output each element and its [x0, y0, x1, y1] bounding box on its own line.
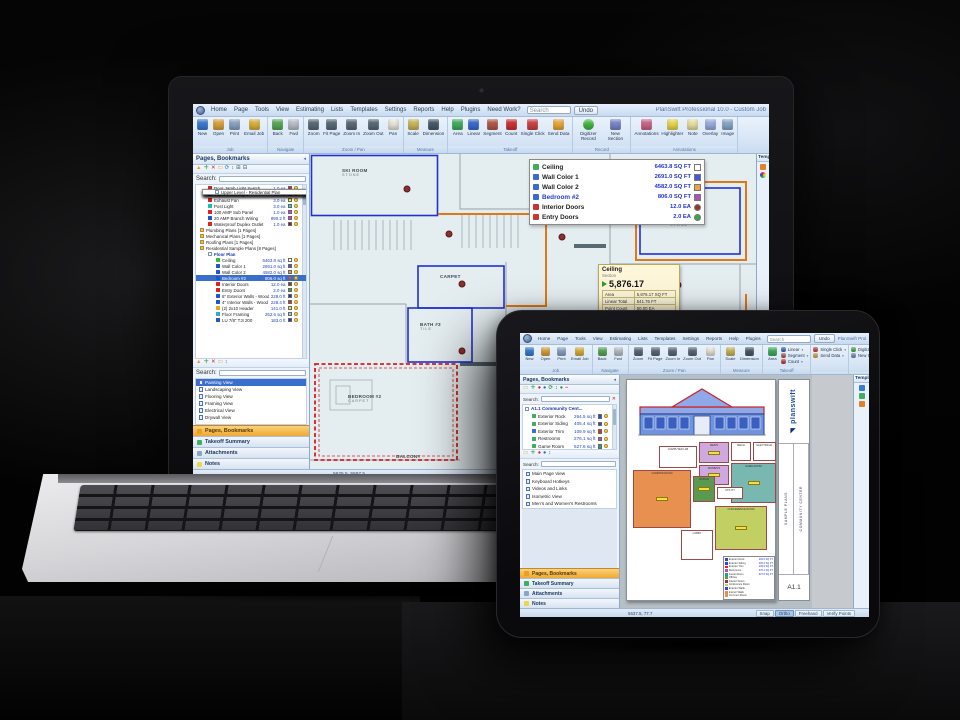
- accordion-icon: [197, 462, 202, 467]
- status-toggle-button[interactable]: Freehand: [795, 610, 822, 617]
- legend-row[interactable]: Bedroom #2 806.0 SQ FT: [533, 192, 701, 202]
- ribbon-button-icon: [851, 347, 856, 352]
- ribbon-button[interactable]: Area: [765, 346, 780, 362]
- panel-search-input[interactable]: [219, 176, 306, 182]
- accordion-icon: [524, 601, 529, 606]
- color-chip[interactable]: [288, 270, 293, 275]
- ribbon-group-label: Measure: [404, 146, 448, 153]
- panel-tool-icon[interactable]: ●: [538, 386, 541, 392]
- tree-item[interactable]: LU 7/8" TJI 200 183.0 ft: [196, 317, 306, 323]
- plan-room[interactable]: LOBBY: [681, 530, 713, 560]
- menu-tab[interactable]: Home: [535, 335, 553, 342]
- window-title: PlanSwift Professional 10.0 - Custom Job: [656, 107, 766, 113]
- ribbon-group-takeoff: Area Linear Segment Count: [448, 117, 573, 153]
- menu-tab[interactable]: Plugins: [458, 106, 484, 114]
- visibility-bulb-icon[interactable]: [604, 422, 608, 426]
- tree-item[interactable]: Restrooms 276.1 sq ft: [523, 435, 616, 443]
- panel-tool-icon[interactable]: ▭: [523, 451, 528, 457]
- ribbon-small-button[interactable]: Single Click ▾: [813, 347, 846, 352]
- plan-canvas[interactable]: COMPUTER LAB MEN'S WOMEN'S: [620, 375, 853, 608]
- ribbon-button[interactable]: Email Job: [243, 118, 265, 137]
- title-block: ◢ planswift SAMPLE PLANS COMMUNITY CENTE…: [778, 379, 810, 601]
- color-chip[interactable]: [288, 258, 293, 263]
- room-label: SKI ROOM STONE: [342, 168, 368, 177]
- pages-bookmarks-panel: Pages, Bookmarks ◂ ▲＋✕▭⟳↕⊞⊟ Search:: [193, 154, 310, 469]
- tree-item-icon: [532, 444, 536, 448]
- sheet-page: COMPUTER LAB MEN'S WOMEN'S: [626, 379, 776, 601]
- view-item[interactable]: Men's and Women's Restrooms: [523, 500, 616, 508]
- panel-tool-icon[interactable]: ▲: [196, 360, 201, 366]
- accordion-icon: [524, 591, 529, 596]
- views-search-input[interactable]: [541, 461, 616, 467]
- plan-room[interactable]: MEN'S: [699, 442, 729, 463]
- view-item[interactable]: Main Page View: [523, 470, 616, 478]
- color-chip[interactable]: [288, 210, 293, 215]
- ribbon-button-icon: [651, 347, 660, 356]
- ribbon-button[interactable]: Zoom Out: [362, 118, 384, 137]
- ribbon-group-label: Measure: [721, 367, 762, 374]
- panel-tool-icon[interactable]: ＋: [530, 451, 536, 457]
- view-item[interactable]: Drywall View: [196, 414, 306, 421]
- tree-item-icon: [208, 222, 212, 226]
- accordion-section[interactable]: Takeoff Summary: [520, 578, 619, 588]
- panel-tool-icon[interactable]: ⊟: [243, 166, 248, 172]
- ribbon-small-button[interactable]: Linear ▾: [781, 347, 809, 352]
- accordion-section[interactable]: Pages, Bookmarks: [520, 568, 619, 578]
- search-input[interactable]: Search: [527, 106, 571, 114]
- ribbon-button[interactable]: Scale: [406, 118, 421, 137]
- ribbon-button[interactable]: Open: [538, 346, 553, 362]
- menu-tab[interactable]: View: [273, 106, 292, 114]
- room-value-tag: [748, 481, 760, 485]
- plan-room[interactable]: COMPUTER LAB: [659, 446, 697, 468]
- ribbon-button-icon: [506, 119, 517, 130]
- menu-tab[interactable]: Settings: [382, 106, 410, 114]
- menu-tab[interactable]: Estimating: [607, 335, 634, 342]
- panel-empty-space: [522, 509, 617, 569]
- app-menu-button[interactable]: [523, 334, 532, 343]
- ribbon-button[interactable]: New: [195, 118, 210, 137]
- tablet-titlebar: HomePageToolsViewEstimatingListsTemplate…: [520, 333, 869, 345]
- scene: HomePageToolsViewEstimatingListsTemplate…: [0, 0, 960, 720]
- view-page-icon: [199, 380, 203, 385]
- tree-item-icon: [200, 240, 204, 244]
- color-chip[interactable]: [598, 414, 603, 419]
- visibility-bulb-icon[interactable]: [294, 312, 298, 316]
- panel-tool-icon[interactable]: ●: [543, 386, 546, 392]
- menu-tab[interactable]: Reports: [410, 106, 437, 114]
- panel-tool-icon[interactable]: ▭: [218, 166, 223, 172]
- ribbon-button[interactable]: Zoom In: [342, 118, 361, 137]
- ribbon-button-icon: [575, 347, 584, 356]
- color-chip[interactable]: [598, 429, 603, 434]
- panel-tool-icon[interactable]: ⊞: [236, 166, 241, 172]
- visibility-bulb-icon[interactable]: [294, 198, 298, 202]
- menu-tab[interactable]: Reports: [703, 335, 725, 342]
- panel-tool-icon[interactable]: ⟳: [548, 386, 553, 392]
- tree-item-icon: [200, 246, 204, 250]
- visibility-bulb-icon[interactable]: [294, 270, 298, 274]
- legend-row[interactable]: Wall Color 1 2691.0 SQ FT: [533, 172, 701, 182]
- ribbon-button[interactable]: Annotations: [633, 118, 659, 137]
- ribbon-button-icon: [583, 119, 594, 130]
- panel-tool-icon[interactable]: ＋: [203, 360, 209, 366]
- ribbon-button-icon: [468, 119, 479, 130]
- color-chip[interactable]: [288, 318, 293, 323]
- panel-header: Pages, Bookmarks ◂: [193, 154, 309, 165]
- panel-header: Pages, Bookmarks ◂: [520, 375, 619, 385]
- ribbon-button-icon: [197, 119, 208, 130]
- tablet-main: Pages, Bookmarks ◂ ▭＋●●⟳↕●− Search: ✕: [520, 375, 869, 608]
- play-icon: [602, 281, 607, 287]
- legend-color-chip: [694, 174, 701, 181]
- menu-tab[interactable]: Help: [726, 335, 741, 342]
- panel-tool-icon[interactable]: −: [565, 386, 568, 392]
- visibility-bulb-icon[interactable]: [294, 222, 298, 226]
- tree-item[interactable]: A1.1 Community Cent...: [523, 405, 616, 413]
- view-page-icon: [199, 394, 203, 399]
- panel-pin-icon[interactable]: ◂: [613, 377, 616, 383]
- visibility-bulb-icon[interactable]: [294, 276, 298, 280]
- menu-tab[interactable]: Page: [554, 335, 571, 342]
- ribbon-button[interactable]: Print: [554, 346, 569, 362]
- menu-tab[interactable]: Help: [438, 106, 456, 114]
- accordion-section[interactable]: Attachments: [193, 447, 309, 458]
- tree-item-icon: [216, 300, 220, 304]
- tree-item[interactable]: Exterior Rock 264.5 sq ft: [523, 413, 616, 421]
- ribbon-button[interactable]: Note: [685, 118, 700, 137]
- ribbon-button[interactable]: Image: [720, 118, 735, 137]
- menu-tab[interactable]: Templates: [652, 335, 679, 342]
- legend-row[interactable]: Wall Color 2 4582.0 SQ FT: [533, 182, 701, 192]
- plan-room[interactable]: COMMON ROOM: [633, 470, 691, 528]
- tree-item-icon: [532, 429, 536, 433]
- ribbon-button[interactable]: New: [522, 346, 537, 362]
- ribbon-group-label: Annotations: [631, 146, 737, 153]
- views-list: Main Page View Keyboard Hotkeys Videos a…: [522, 469, 617, 509]
- view-item[interactable]: Electrical View: [196, 407, 306, 414]
- visibility-bulb-icon[interactable]: [294, 258, 298, 262]
- panel-tool-icon[interactable]: ●: [560, 386, 563, 392]
- ribbon-group-click: Single Click ▾ Send Data ▾: [811, 345, 849, 374]
- ribbon-button-icon: [598, 347, 607, 356]
- status-toggle-button[interactable]: Snap: [756, 610, 774, 617]
- ribbon-small-button[interactable]: Send Data ▾: [813, 353, 846, 358]
- plan-room[interactable]: OFFICE: [693, 476, 715, 502]
- color-chip[interactable]: [288, 276, 293, 281]
- ribbon-small-button[interactable]: Segment ▾: [781, 353, 809, 358]
- accordion-section[interactable]: Takeoff Summary: [193, 436, 309, 447]
- templates-colorwheel-icon[interactable]: [760, 172, 766, 178]
- tree-item[interactable]: Game Room 627.6 sq ft: [523, 443, 616, 451]
- visibility-bulb-icon[interactable]: [294, 264, 298, 268]
- ribbon-button[interactable]: Pan: [386, 118, 401, 137]
- ribbon-button[interactable]: Count: [504, 118, 519, 137]
- ribbon-button[interactable]: Overlay: [701, 118, 719, 137]
- menu-tab[interactable]: Home: [208, 106, 230, 114]
- visibility-bulb-icon[interactable]: [294, 300, 298, 304]
- color-chip[interactable]: [288, 294, 293, 299]
- visibility-bulb-icon[interactable]: [294, 288, 298, 292]
- tablet-screen: HomePageToolsViewEstimatingListsTemplate…: [520, 333, 869, 617]
- laptop-ribbon: New Open Print Email Job: [193, 117, 769, 154]
- legend-row[interactable]: Ceiling 6463.8 SQ FT: [533, 162, 701, 172]
- ribbon-button-icon: [705, 119, 716, 130]
- panel-tool-icon[interactable]: ＋: [203, 166, 209, 172]
- menu-tab[interactable]: Settings: [679, 335, 702, 342]
- ribbon-group-label: [811, 372, 848, 374]
- panel-tool-icon[interactable]: ▭: [218, 360, 223, 366]
- laptop-titlebar: HomePageToolsViewEstimatingListsTemplate…: [193, 104, 769, 117]
- menu-tab[interactable]: Templates: [347, 106, 380, 114]
- tree-item-icon: [216, 312, 220, 316]
- status-toggle-button[interactable]: Verify Points: [823, 610, 855, 617]
- ribbon-group-navigate: Back Fwd Navigate: [268, 117, 304, 153]
- door-count-marker[interactable]: [459, 348, 466, 355]
- visibility-bulb-icon[interactable]: [294, 306, 298, 310]
- takeoff-type-icon: [533, 184, 539, 190]
- ribbon-button[interactable]: Fit Page: [322, 118, 341, 137]
- plan-room[interactable]: CONFERENCE ROOM: [715, 506, 767, 550]
- color-chip[interactable]: [288, 306, 293, 311]
- ribbon-button[interactable]: Digitizer Record: [575, 118, 601, 142]
- panel-tool-icon[interactable]: ↕: [555, 386, 558, 392]
- visibility-bulb-icon[interactable]: [294, 318, 298, 322]
- panel-tool-icon[interactable]: ⟳: [225, 166, 230, 172]
- planswift-logo-mark: ◢: [790, 423, 797, 434]
- panel-toolbar: ▲＋✕▭⟳↕⊞⊟: [193, 165, 309, 174]
- accordion-section[interactable]: Pages, Bookmarks: [193, 425, 309, 436]
- ribbon-button[interactable]: Single Click: [520, 118, 546, 137]
- color-chip[interactable]: [598, 444, 603, 449]
- tree-item-icon: [216, 264, 220, 268]
- views-toolbar: ▭＋●●↕: [520, 450, 619, 459]
- visibility-bulb-icon[interactable]: [604, 429, 608, 433]
- color-chip[interactable]: [288, 300, 293, 305]
- view-item[interactable]: Keyboard Hotkeys: [523, 478, 616, 486]
- view-item[interactable]: Isometric View: [523, 493, 616, 501]
- panel-tool-icon[interactable]: ▲: [196, 166, 201, 172]
- laptop-camera: [479, 88, 484, 93]
- tree-item-icon: [216, 258, 220, 262]
- search-clear-icon[interactable]: ✕: [612, 396, 616, 402]
- legend-row: Common Room: [725, 594, 773, 598]
- color-chip[interactable]: [288, 216, 293, 221]
- ribbon-button[interactable]: Back: [595, 346, 610, 362]
- door-count-marker[interactable]: [459, 281, 466, 288]
- ribbon-button[interactable]: Scale: [723, 346, 738, 362]
- menu-tab[interactable]: Lists: [328, 106, 346, 114]
- legend-swatch: [725, 591, 728, 594]
- undo-button[interactable]: Undo: [574, 106, 598, 115]
- legend-row[interactable]: Entry Doors 2.0 EA: [533, 212, 701, 222]
- ribbon-button[interactable]: Highlighter: [660, 118, 684, 137]
- panel-tool-icon[interactable]: ▭: [523, 386, 528, 392]
- ribbon-button[interactable]: Dimension: [422, 118, 446, 137]
- ribbon-group-label: Zoom / Pan: [304, 146, 402, 153]
- templates-icon-orange[interactable]: [859, 401, 865, 407]
- view-item[interactable]: Landscaping View: [196, 386, 306, 393]
- panel-search-input[interactable]: [541, 396, 610, 402]
- ribbon-button-icon: [557, 347, 566, 356]
- visibility-bulb-icon[interactable]: [294, 216, 298, 220]
- tree-item-icon: [216, 282, 220, 286]
- ribbon-button[interactable]: Fit Page: [647, 346, 664, 362]
- panel-tool-icon[interactable]: ↕: [225, 360, 228, 366]
- ribbon-small-button[interactable]: Digitizer Record: [851, 347, 869, 352]
- ribbon-button[interactable]: Linear: [466, 118, 481, 137]
- ribbon-group-job: New Open Print Email Job: [193, 117, 268, 153]
- view-item[interactable]: Videos and Links: [523, 485, 616, 493]
- ribbon-button-icon: [668, 347, 677, 356]
- door-count-marker[interactable]: [559, 234, 566, 241]
- accordion-section[interactable]: Notes: [520, 598, 619, 608]
- ribbon-button[interactable]: Email Job: [570, 346, 590, 362]
- menu-tab[interactable]: Tools: [572, 335, 589, 342]
- visibility-bulb-icon[interactable]: [604, 444, 608, 448]
- ribbon-button-icon: [408, 119, 419, 130]
- plan-room[interactable]: UTILITY: [717, 487, 743, 499]
- legend-row[interactable]: Interior Doors 12.0 EA: [533, 202, 701, 212]
- visibility-bulb-icon[interactable]: [604, 414, 608, 418]
- legend-color-chip: [694, 194, 701, 201]
- tree-item-icon: [208, 252, 212, 256]
- search-input[interactable]: Search: [767, 335, 811, 343]
- planswift-logo: ◢ planswift: [779, 380, 809, 444]
- panel-tool-icon[interactable]: ●: [538, 451, 541, 457]
- ribbon-button[interactable]: Send Data: [547, 118, 571, 137]
- tree-item[interactable]: Upper Level - Residential Plan: [202, 189, 307, 195]
- tree-item[interactable]: Exterior Trim 109.9 sq ft: [523, 428, 616, 436]
- view-item[interactable]: Framing View: [196, 400, 306, 407]
- panel-tool-icon[interactable]: ✕: [211, 166, 216, 172]
- undo-button[interactable]: Undo: [814, 334, 835, 343]
- color-chip[interactable]: [288, 288, 293, 293]
- ribbon-button[interactable]: Zoom In: [664, 346, 681, 362]
- color-chip[interactable]: [288, 264, 293, 269]
- ribbon-group-label: Navigate: [268, 146, 303, 153]
- color-chip[interactable]: [598, 422, 603, 427]
- ribbon-button[interactable]: Print: [227, 118, 242, 137]
- door-count-marker[interactable]: [446, 231, 453, 238]
- color-chip[interactable]: [288, 312, 293, 317]
- panel-tool-icon[interactable]: ↕: [231, 166, 234, 172]
- color-chip[interactable]: [288, 204, 293, 209]
- ribbon-button-icon: [288, 119, 299, 130]
- ribbon-button-icon: [781, 359, 786, 364]
- tree-item-icon: [208, 216, 212, 220]
- menu-tab[interactable]: Lists: [635, 335, 650, 342]
- templates-icon-green[interactable]: [859, 393, 865, 399]
- sheet-legend: Exterior Rock 264.5 SQ FT Exterior Sidin…: [723, 556, 775, 600]
- tooltip-table: Area5,876.17 SQ FT Linear Total541.76 FT…: [602, 290, 676, 312]
- ribbon-group-label: Record: [573, 146, 630, 153]
- panel-tool-icon[interactable]: ✕: [211, 360, 216, 366]
- templates-panel: Templates: [853, 375, 869, 608]
- tree-item-icon: [208, 210, 212, 214]
- ribbon-button-icon: [768, 347, 777, 356]
- sheet-number: A1.1: [779, 574, 809, 600]
- ribbon-button[interactable]: Area: [450, 118, 465, 137]
- takeoff-legend: Ceiling 6463.8 SQ FT Wall Color 1 2691.0…: [529, 159, 705, 225]
- ribbon-button[interactable]: Zoom: [306, 118, 321, 137]
- menu-tab[interactable]: Plugins: [743, 335, 764, 342]
- door-count-marker[interactable]: [404, 186, 411, 193]
- visibility-bulb-icon[interactable]: [294, 204, 298, 208]
- visibility-bulb-icon[interactable]: [294, 210, 298, 214]
- panel-tool-icon[interactable]: ↕: [548, 451, 551, 457]
- menu-tab[interactable]: Page: [231, 106, 251, 114]
- status-toggle-button[interactable]: Ortho: [775, 610, 794, 617]
- menu-tab[interactable]: Tools: [252, 106, 272, 114]
- templates-icon-blue[interactable]: [859, 385, 865, 391]
- ribbon-button[interactable]: New Section: [602, 118, 628, 142]
- legend-swatch: [725, 573, 728, 576]
- ribbon-small-button[interactable]: New Section: [851, 353, 869, 358]
- legend-color-chip: [694, 204, 701, 211]
- ribbon-button[interactable]: Fwd: [286, 118, 301, 137]
- plan-room[interactable]: ELECTRICAL: [753, 442, 776, 461]
- color-chip[interactable]: [288, 282, 293, 287]
- ribbon-button[interactable]: Fwd: [611, 346, 626, 362]
- panel-tool-icon[interactable]: ＋: [530, 386, 536, 392]
- visibility-bulb-icon[interactable]: [604, 437, 608, 441]
- ribbon-button-icon: [213, 119, 224, 130]
- color-chip[interactable]: [598, 437, 603, 442]
- visibility-bulb-icon[interactable]: [294, 294, 298, 298]
- room-label: BATH #3 TILE: [420, 322, 441, 331]
- ribbon-button-icon: [272, 119, 283, 130]
- accordion-icon: [197, 429, 202, 434]
- visibility-bulb-icon[interactable]: [294, 282, 298, 286]
- view-page-icon: [526, 494, 530, 499]
- canvas-background: [812, 375, 853, 608]
- tree-item-icon: [200, 234, 204, 238]
- menu-tab[interactable]: View: [590, 335, 606, 342]
- room-value-tag: [656, 497, 668, 501]
- accordion-section[interactable]: Attachments: [520, 588, 619, 598]
- ribbon-small-button[interactable]: Count ▾: [781, 359, 809, 364]
- app-menu-button[interactable]: [196, 106, 205, 115]
- color-chip[interactable]: [288, 222, 293, 227]
- menu-tab[interactable]: Need Work?: [484, 106, 523, 114]
- ribbon-button-icon: [667, 119, 678, 130]
- view-item[interactable]: Flooring View: [196, 393, 306, 400]
- floor-surface-left: [0, 596, 420, 720]
- view-page-icon: [526, 479, 530, 484]
- panel-tool-icon[interactable]: ●: [543, 451, 546, 457]
- tree-item[interactable]: Exterior Siding 405.4 sq ft: [523, 420, 616, 428]
- view-item[interactable]: Painting View: [196, 379, 306, 386]
- ribbon-button[interactable]: Open: [211, 118, 226, 137]
- accordion-section[interactable]: Notes: [193, 458, 309, 469]
- ribbon-button[interactable]: Segment: [482, 118, 502, 137]
- panel-pin-icon[interactable]: ◂: [303, 156, 306, 162]
- views-search-input[interactable]: [219, 370, 306, 376]
- ribbon-button[interactable]: Zoom Out: [682, 346, 702, 362]
- ribbon-button[interactable]: Back: [270, 118, 285, 137]
- ribbon-button[interactable]: Zoom: [631, 346, 646, 362]
- view-page-icon: [199, 401, 203, 406]
- ribbon-button[interactable]: Pan: [703, 346, 718, 362]
- tablet-menubar: HomePageToolsViewEstimatingListsTemplate…: [535, 335, 764, 342]
- plan-room[interactable]: MECH: [731, 442, 751, 461]
- color-chip[interactable]: [288, 198, 293, 203]
- menu-tab[interactable]: Estimating: [293, 106, 327, 114]
- templates-part-icon[interactable]: [760, 164, 766, 170]
- ribbon-button[interactable]: Dimension: [739, 346, 760, 362]
- ribbon-group-label: Job: [520, 367, 592, 374]
